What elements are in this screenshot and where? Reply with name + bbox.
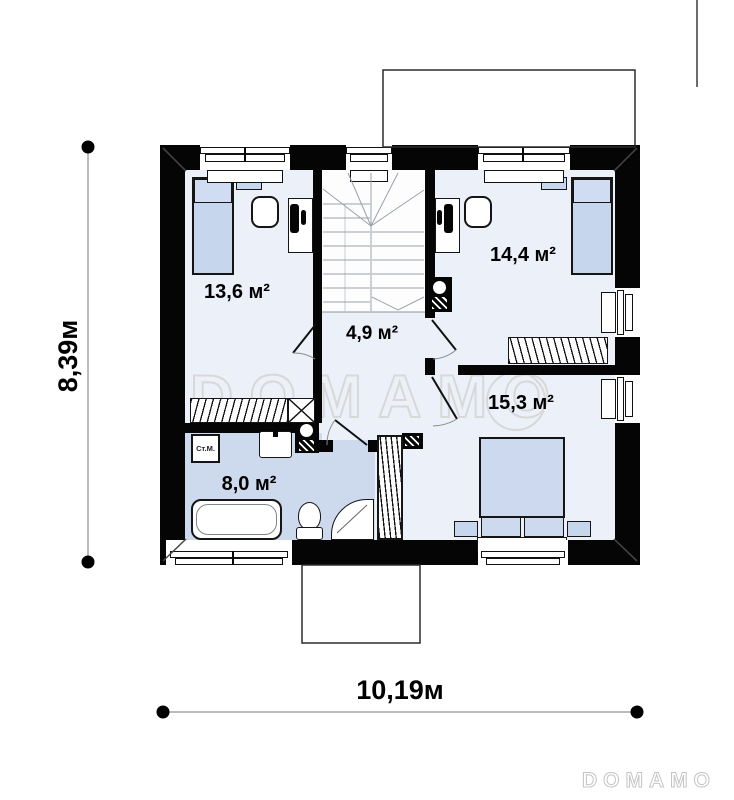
window-sill	[350, 170, 388, 182]
window-icon	[617, 377, 624, 421]
window-sill	[207, 170, 283, 183]
chimney-flue-icon	[433, 281, 446, 294]
staircase-floor	[322, 170, 425, 312]
window-sill	[484, 170, 564, 183]
window-icon	[625, 381, 633, 417]
exterior-wall-left	[160, 145, 185, 565]
monitor-stand-icon	[301, 210, 306, 225]
window-icon	[486, 558, 560, 565]
window-icon	[346, 147, 392, 154]
window-sill	[601, 379, 616, 419]
monitor-icon	[290, 204, 299, 233]
room-label-15-3: 15,3 м²	[461, 392, 581, 415]
wardrobe-icon	[508, 337, 608, 364]
wall-hall-bedroombottom-stub	[425, 365, 432, 375]
chair-icon	[464, 196, 492, 228]
room-label-4-9: 4,9 м²	[312, 323, 432, 345]
nightstand-icon	[567, 521, 591, 537]
window-icon	[481, 551, 565, 558]
exterior-wall-right	[615, 145, 640, 565]
window-icon	[175, 558, 283, 565]
sink-tap-icon	[273, 430, 278, 437]
toilet-icon	[298, 502, 321, 530]
window-sill	[601, 292, 616, 333]
wardrobe-icon	[377, 435, 403, 540]
chimney-flue-icon	[300, 424, 313, 437]
window-icon	[170, 551, 288, 558]
window-mullion	[232, 551, 234, 565]
window-mullion	[244, 147, 246, 162]
washing-machine-label: Ст.М.	[191, 434, 220, 463]
shelf-unit-icon	[288, 398, 315, 423]
vent-grille-icon	[432, 297, 447, 309]
window-icon	[625, 294, 633, 331]
wall-bedroomleft-stairs	[313, 170, 322, 423]
chair-icon	[251, 196, 279, 228]
floor-plan-canvas: DOMAMO Ст.М.	[0, 0, 734, 800]
bathtub-inner	[196, 504, 277, 535]
roof-outline-bottom	[302, 565, 420, 643]
brand-logo: DOMAMO	[582, 769, 716, 793]
vent-grille-icon	[405, 436, 419, 446]
dimension-label-vertical: 8,39м	[53, 281, 93, 431]
toilet-base-icon	[296, 527, 323, 540]
roof-outline-top	[383, 0, 697, 147]
wall-hall-bathroom-left	[319, 440, 333, 452]
window-icon	[478, 147, 570, 154]
room-label-8-0: 8,0 м²	[189, 473, 309, 496]
pillow-icon	[481, 517, 521, 537]
room-label-14-4: 14,4 м²	[463, 244, 583, 267]
window-icon	[617, 290, 624, 335]
window-mullion	[522, 147, 524, 162]
wall-bedroomright-bedroombottom	[458, 365, 615, 375]
window-icon	[483, 154, 565, 162]
vent-grille-icon	[299, 440, 314, 451]
pillow-icon	[524, 517, 564, 537]
room-label-13-6: 13,6 м²	[177, 281, 297, 304]
dimension-line-horizontal	[157, 706, 644, 719]
window-icon	[350, 154, 388, 162]
monitor-icon	[444, 204, 453, 233]
monitor-stand-icon	[437, 210, 442, 225]
wardrobe-icon	[190, 398, 288, 423]
double-bed-icon	[479, 437, 565, 518]
pillow-icon	[573, 179, 611, 203]
dimension-label-horizontal: 10,19м	[325, 675, 475, 706]
nightstand-icon	[454, 521, 478, 537]
